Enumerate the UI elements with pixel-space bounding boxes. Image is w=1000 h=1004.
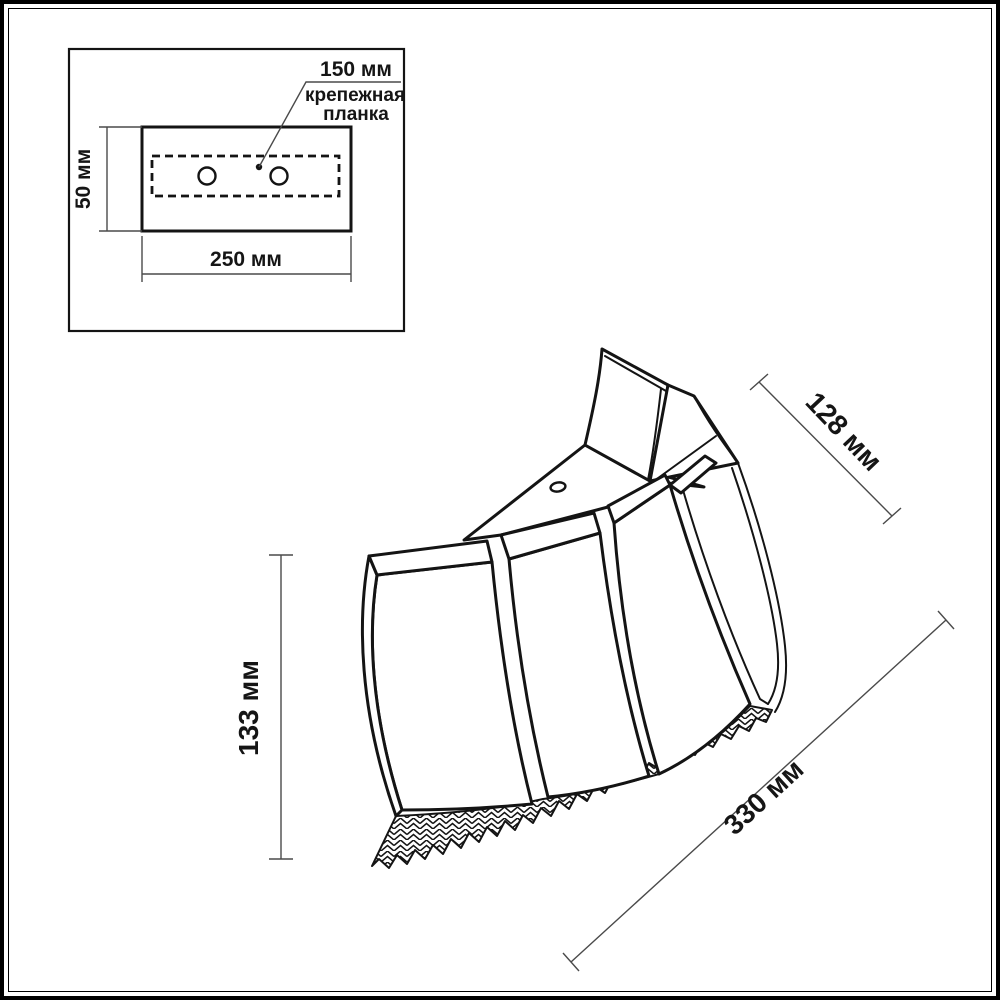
diagram-page: 150 мм крепежная планка 50 мм 250 мм (0, 0, 1000, 1000)
inset-mounting-plate-diagram: 150 мм крепежная планка 50 мм 250 мм (69, 49, 405, 331)
holes-spacing-label: 150 мм (320, 58, 392, 81)
sconce-shade-drawing (362, 349, 786, 868)
inset-width-label: 250 мм (210, 248, 282, 271)
top-width-dimension-label: 128 мм (800, 386, 889, 477)
inset-height-label: 50 мм (72, 149, 95, 209)
dimension-diagram-canvas: 150 мм крепежная планка 50 мм 250 мм (4, 4, 1000, 1004)
panel-left (372, 562, 532, 810)
screw-hole-right (271, 168, 288, 185)
plate-label-line2: планка (323, 104, 389, 125)
screw-hole-left (199, 168, 216, 185)
mounting-plate-outline (142, 127, 351, 231)
plate-label-line1: крепежная (305, 85, 405, 106)
top-width-dimension: 128 мм (750, 374, 901, 524)
height-dimension: 133 мм (233, 555, 293, 859)
height-dimension-label: 133 мм (233, 660, 264, 756)
bottom-width-dimension-label: 330 мм (718, 753, 810, 841)
